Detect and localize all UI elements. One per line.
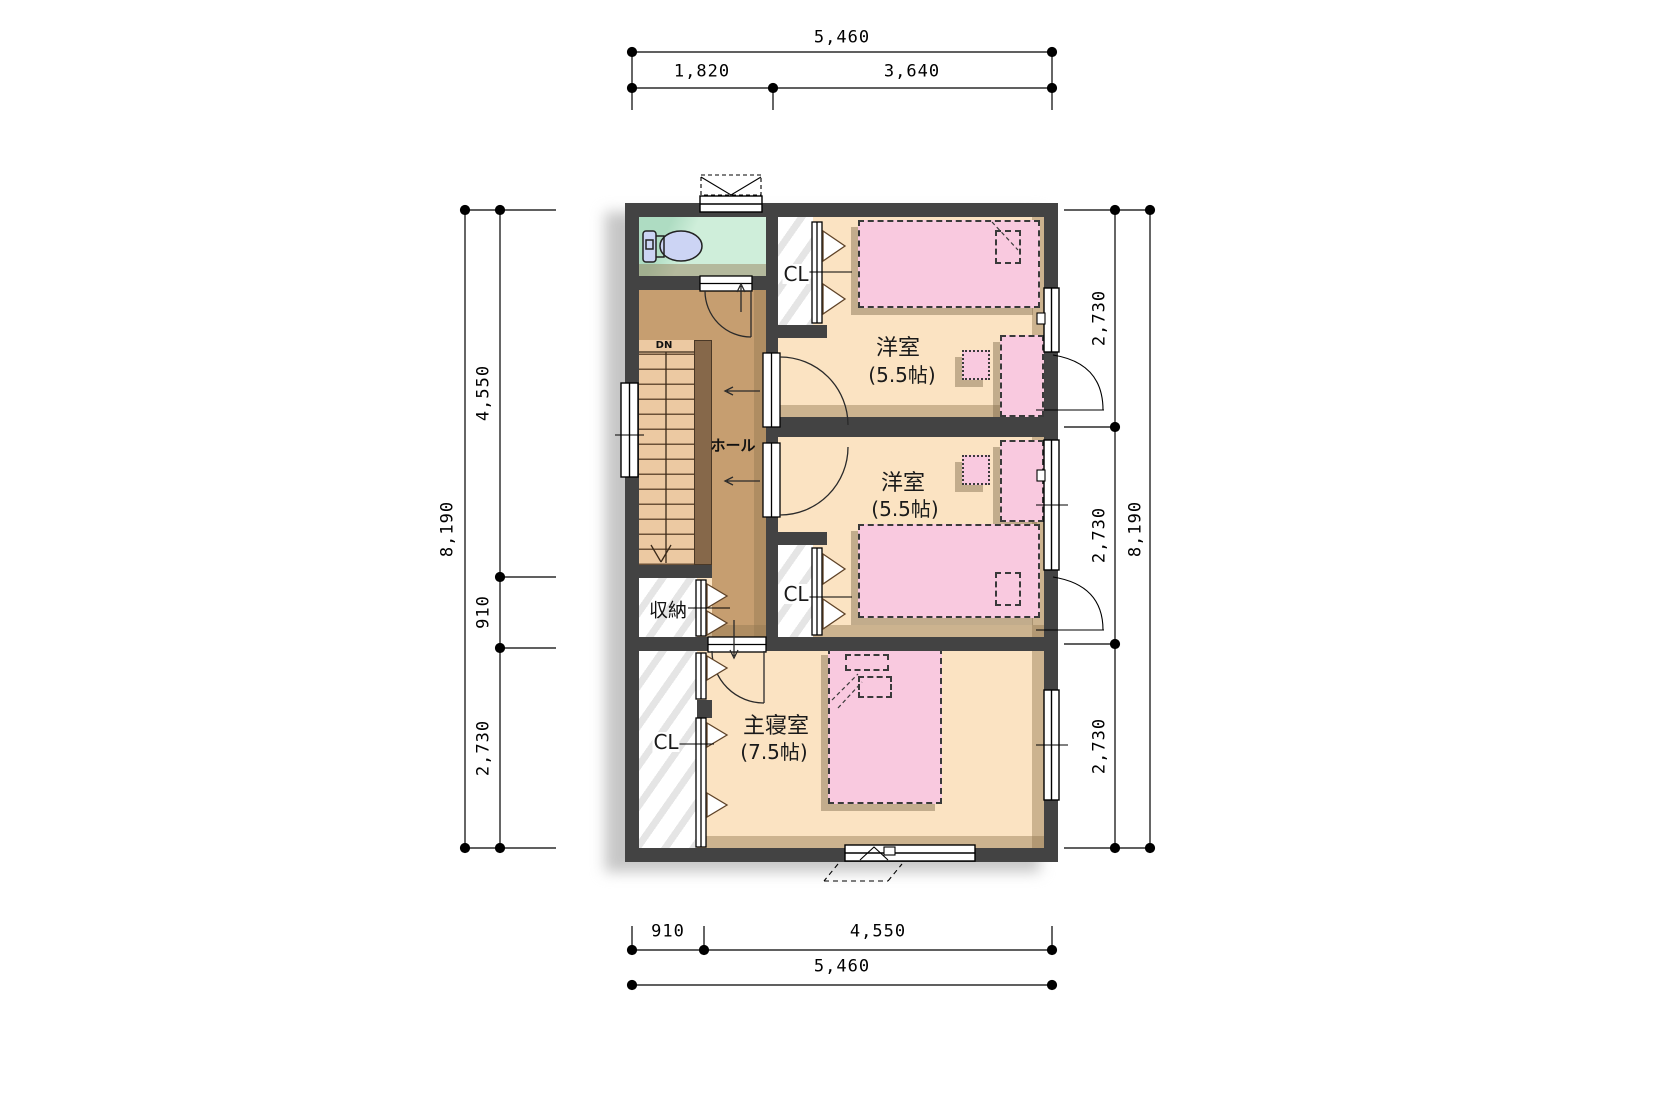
dim-top-seg2: 3,640 [884,64,940,81]
label-stairs-down: DN [656,341,673,351]
pillow-master-2 [858,676,892,698]
shade-bottom [639,836,1044,848]
label-hall: ホール [710,439,755,454]
label-west1-size: (5.5帖) [868,365,935,385]
shade-toilet [639,264,766,276]
wall-closet-master-stub [697,700,712,718]
desk-west2 [1000,440,1044,522]
pillow-west2 [995,572,1021,606]
desk-west1 [1000,335,1044,417]
stairs-treads [639,340,694,565]
dim-right-total: 8,190 [1128,501,1145,557]
dim-top-total: 5,460 [814,30,870,47]
shade-hall [754,290,766,637]
label-closet-west2: CL [782,584,809,604]
wall-toilet-bottom [639,276,766,290]
label-master-size: (7.5帖) [740,742,807,762]
label-closet-master: CL [652,732,679,752]
wall-outer-left [625,203,639,862]
shade-wall2 [639,625,1044,637]
wall-outer-bottom [625,848,1058,862]
label-west2-size: (5.5帖) [871,499,938,519]
wall-closet2-stub [778,532,827,545]
dim-right-seg3: 2,730 [1092,718,1109,774]
pillow-west1 [995,230,1021,264]
dim-top-seg1: 1,820 [674,64,730,81]
dim-left-seg3: 2,730 [476,720,493,776]
dim-bottom-total: 5,460 [814,959,870,976]
label-storage: 収納 [649,602,687,621]
dim-left-seg1: 4,550 [476,365,493,421]
label-closet-west1: CL [782,264,809,284]
label-west1-name: 洋室 [876,338,920,360]
dim-left-seg2: 910 [476,595,493,629]
bed-master [828,648,942,804]
label-master-name: 主寝室 [743,716,809,738]
wall-outer-right [1044,203,1058,862]
stairs-rail [694,340,712,565]
wall-west1-west2 [766,417,1044,437]
dim-right-seg1: 2,730 [1092,290,1109,346]
dim-right-seg2: 2,730 [1092,507,1109,563]
floor-plan-canvas: 洋室 (5.5帖) 洋室 (5.5帖) 主寝室 (7.5帖) ホール 収納 CL… [0,0,1680,1120]
wall-outer-top [625,203,1058,217]
wall-west2-master [639,637,1044,651]
bed-west2 [858,524,1040,618]
bed-west1 [858,220,1040,308]
dim-bottom-seg1: 910 [651,924,685,941]
label-west2-name: 洋室 [881,473,925,495]
dim-left-total: 8,190 [440,501,457,557]
wall-closet1-stub [778,325,827,338]
chair-west2 [962,455,990,485]
pillow-master-1 [845,654,889,671]
dim-bottom-seg2: 4,550 [850,924,906,941]
floor-hall-upper [639,290,766,340]
chair-west1 [962,350,990,380]
